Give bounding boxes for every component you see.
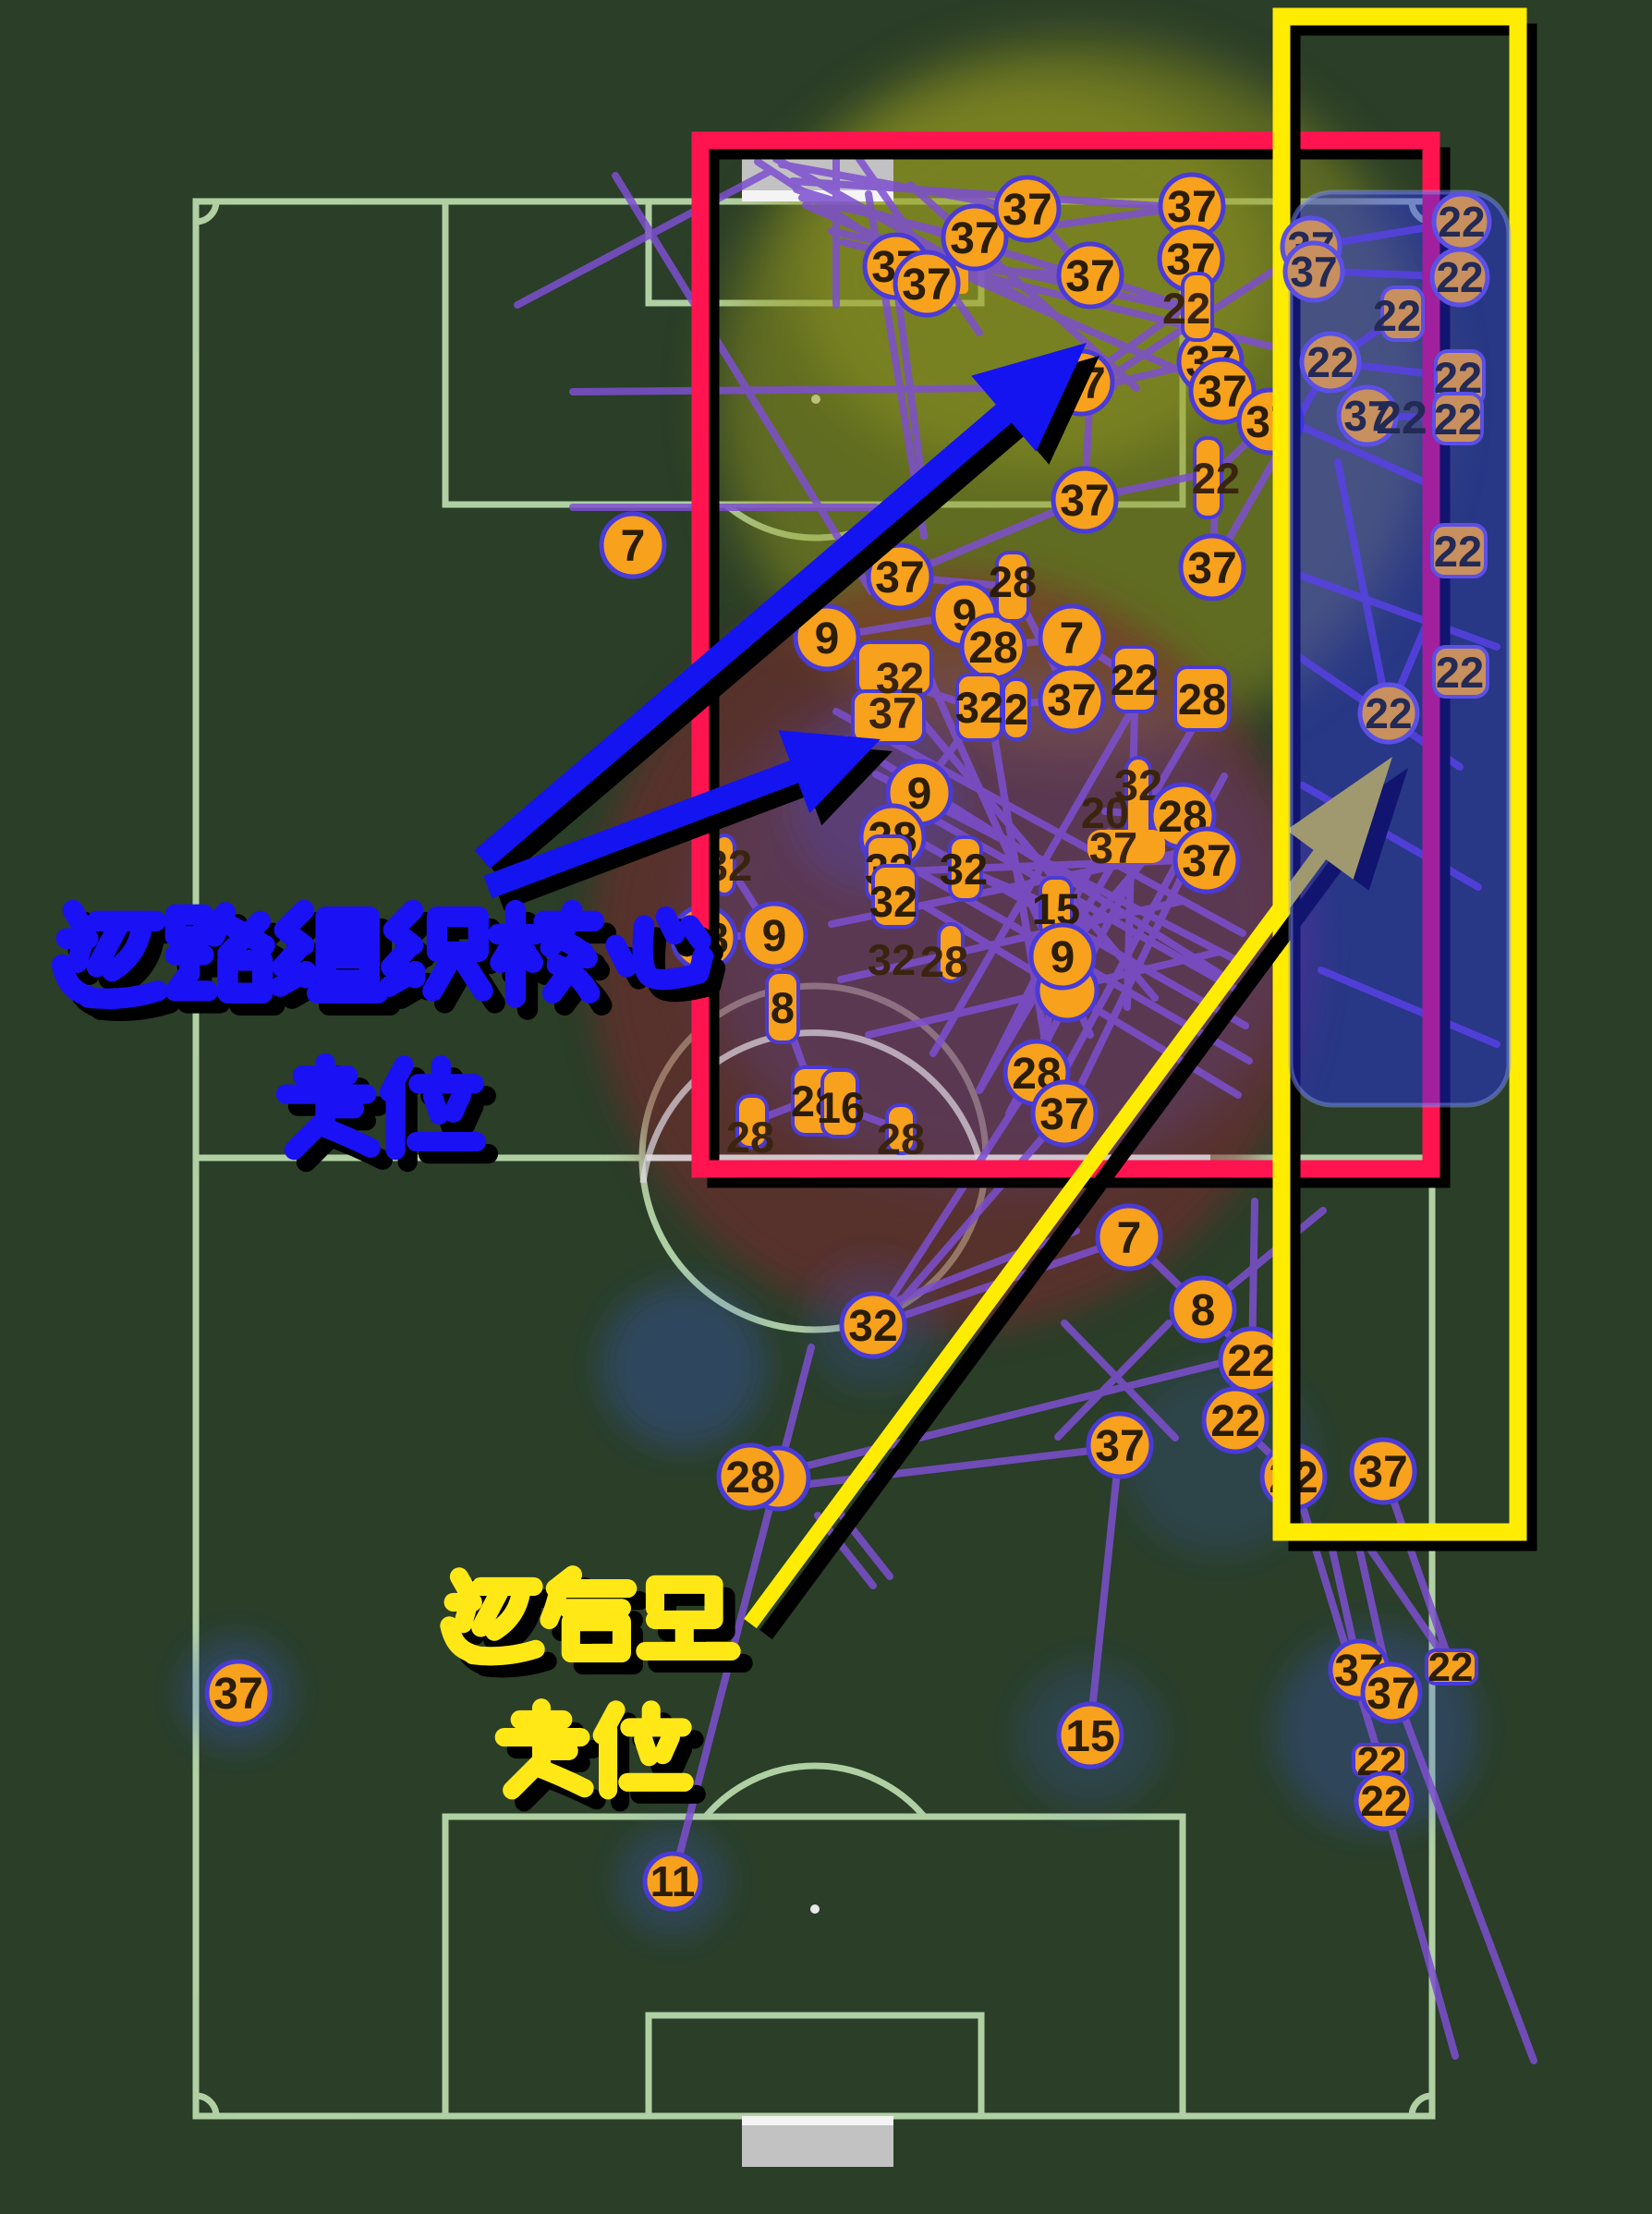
svg-text:7: 7 bbox=[621, 522, 646, 571]
svg-text:22: 22 bbox=[1210, 1397, 1259, 1446]
svg-text:22: 22 bbox=[1162, 284, 1210, 333]
svg-text:22: 22 bbox=[1227, 1337, 1276, 1386]
svg-text:22: 22 bbox=[1373, 291, 1421, 340]
svg-text:37: 37 bbox=[1182, 837, 1231, 886]
svg-text:22: 22 bbox=[1436, 253, 1483, 301]
svg-text:28: 28 bbox=[726, 1113, 774, 1162]
svg-text:28: 28 bbox=[725, 1454, 774, 1502]
svg-text:37: 37 bbox=[950, 214, 999, 263]
svg-text:37: 37 bbox=[1167, 183, 1216, 232]
svg-text:22: 22 bbox=[1192, 454, 1240, 503]
svg-text:28: 28 bbox=[920, 937, 968, 986]
svg-text:32: 32 bbox=[868, 935, 916, 984]
svg-text:32: 32 bbox=[869, 877, 917, 926]
svg-text:37: 37 bbox=[1367, 1670, 1415, 1719]
svg-text:9: 9 bbox=[1051, 933, 1075, 982]
svg-text:22: 22 bbox=[1428, 1645, 1474, 1690]
svg-text:7: 7 bbox=[1117, 1214, 1142, 1263]
svg-text:15: 15 bbox=[1065, 1712, 1114, 1761]
svg-text:32: 32 bbox=[955, 683, 1003, 732]
svg-text:37: 37 bbox=[902, 261, 951, 310]
svg-text:28: 28 bbox=[877, 1114, 925, 1163]
svg-text:37: 37 bbox=[1060, 477, 1109, 526]
svg-text:28: 28 bbox=[1178, 675, 1226, 724]
svg-text:37: 37 bbox=[1290, 248, 1337, 296]
svg-text:22: 22 bbox=[1365, 689, 1412, 737]
svg-text:37: 37 bbox=[1089, 823, 1137, 872]
svg-text:7: 7 bbox=[1060, 614, 1085, 663]
svg-text:22: 22 bbox=[1360, 1777, 1407, 1825]
svg-text:22: 22 bbox=[1434, 395, 1482, 444]
svg-text:9: 9 bbox=[815, 614, 840, 663]
svg-text:37: 37 bbox=[1002, 186, 1051, 235]
svg-text:8: 8 bbox=[1191, 1286, 1216, 1335]
svg-text:37: 37 bbox=[1095, 1422, 1144, 1471]
svg-text:37: 37 bbox=[213, 1670, 262, 1719]
svg-text:22: 22 bbox=[1436, 648, 1484, 697]
svg-text:37: 37 bbox=[875, 553, 924, 602]
svg-text:22: 22 bbox=[1438, 198, 1485, 246]
svg-text:22: 22 bbox=[1434, 527, 1482, 576]
svg-text:37: 37 bbox=[1047, 676, 1096, 725]
svg-text:37: 37 bbox=[1039, 1090, 1088, 1139]
svg-text:22: 22 bbox=[1376, 392, 1427, 444]
svg-text:32: 32 bbox=[848, 1302, 897, 1351]
svg-text:37: 37 bbox=[869, 688, 917, 737]
svg-text:32: 32 bbox=[940, 845, 988, 894]
svg-text:11: 11 bbox=[650, 1857, 696, 1905]
svg-text:22: 22 bbox=[1306, 338, 1354, 386]
svg-text:16: 16 bbox=[817, 1083, 865, 1132]
svg-text:37: 37 bbox=[1187, 544, 1236, 593]
svg-text:9: 9 bbox=[762, 912, 787, 961]
svg-text:8: 8 bbox=[771, 983, 795, 1032]
svg-text:2: 2 bbox=[1004, 685, 1028, 734]
svg-text:22: 22 bbox=[1111, 655, 1159, 704]
svg-text:28: 28 bbox=[989, 557, 1037, 606]
svg-text:28: 28 bbox=[968, 624, 1017, 673]
svg-text:37: 37 bbox=[1065, 252, 1114, 301]
svg-text:37: 37 bbox=[1358, 1448, 1407, 1497]
